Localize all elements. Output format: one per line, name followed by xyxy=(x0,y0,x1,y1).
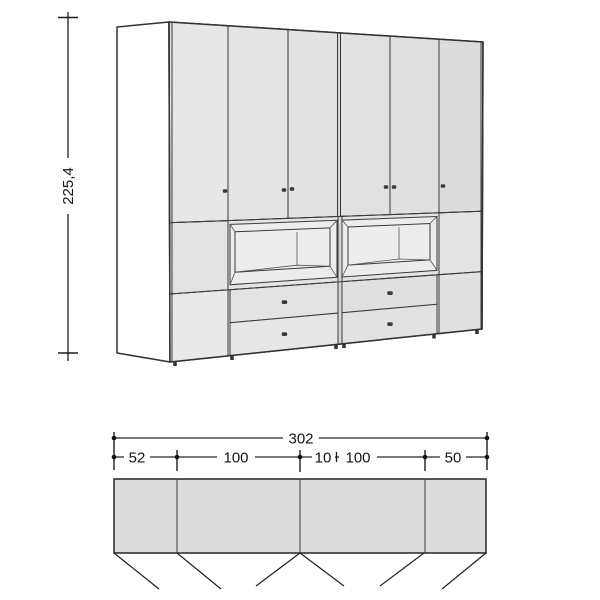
door-4 xyxy=(341,33,391,217)
technical-drawing-page: 225,4 xyxy=(0,0,600,600)
drawer-knob xyxy=(388,323,393,326)
dim-dot xyxy=(112,436,117,441)
door-swing-line xyxy=(380,553,424,586)
segment-label-52: 52 xyxy=(129,450,146,467)
door-knob xyxy=(290,188,294,191)
door-swing-line xyxy=(177,553,221,589)
niche-left xyxy=(230,220,337,284)
door-6 xyxy=(439,39,481,213)
dim-dot xyxy=(485,436,490,441)
dim-dot xyxy=(298,455,303,460)
drawer-knob xyxy=(282,301,287,304)
door-5 xyxy=(390,36,439,215)
doors xyxy=(172,22,481,222)
segment-label-100a: 100 xyxy=(223,450,248,467)
door-swing-line xyxy=(442,553,486,589)
door-knob xyxy=(223,190,227,193)
total-width-label: 302 xyxy=(288,431,313,448)
lower-panel-left xyxy=(170,290,228,362)
door-knob xyxy=(282,189,286,192)
segment-label-50: 50 xyxy=(445,450,462,467)
width-dimensions: 302 52 100 10 100 50 xyxy=(112,428,490,472)
dim-dot xyxy=(423,455,428,460)
door-swing-lines xyxy=(114,553,486,589)
dim-dot xyxy=(485,455,490,460)
door-1 xyxy=(172,22,228,222)
drawer-knob xyxy=(388,292,393,295)
drawer-knob xyxy=(282,333,287,336)
plan-view: 302 52 100 10 100 50 xyxy=(112,428,490,589)
segment-label-100b: 100 xyxy=(345,450,370,467)
elevation-view: 225,4 xyxy=(58,12,483,366)
door-knob xyxy=(441,185,445,188)
door-swing-line xyxy=(256,553,300,586)
dim-dot xyxy=(175,455,180,460)
height-dimension: 225,4 xyxy=(58,12,78,361)
drawer-center-divider xyxy=(338,216,342,344)
niche-right xyxy=(342,217,437,278)
side-panel-left xyxy=(117,22,170,362)
plan-body xyxy=(114,479,486,553)
segment-label-10: 10 xyxy=(315,450,332,467)
door-knob xyxy=(384,186,388,189)
door-swing-line xyxy=(300,553,344,586)
door-swing-line xyxy=(114,553,159,589)
door-2 xyxy=(228,26,288,221)
technical-drawing: 225,4 xyxy=(0,0,600,600)
door-3 xyxy=(288,30,338,219)
height-dimension-label: 225,4 xyxy=(60,167,77,205)
dim-dot xyxy=(112,455,117,460)
wardrobe xyxy=(117,22,483,366)
lower-panel-right xyxy=(439,272,481,334)
door-knob xyxy=(392,186,396,189)
